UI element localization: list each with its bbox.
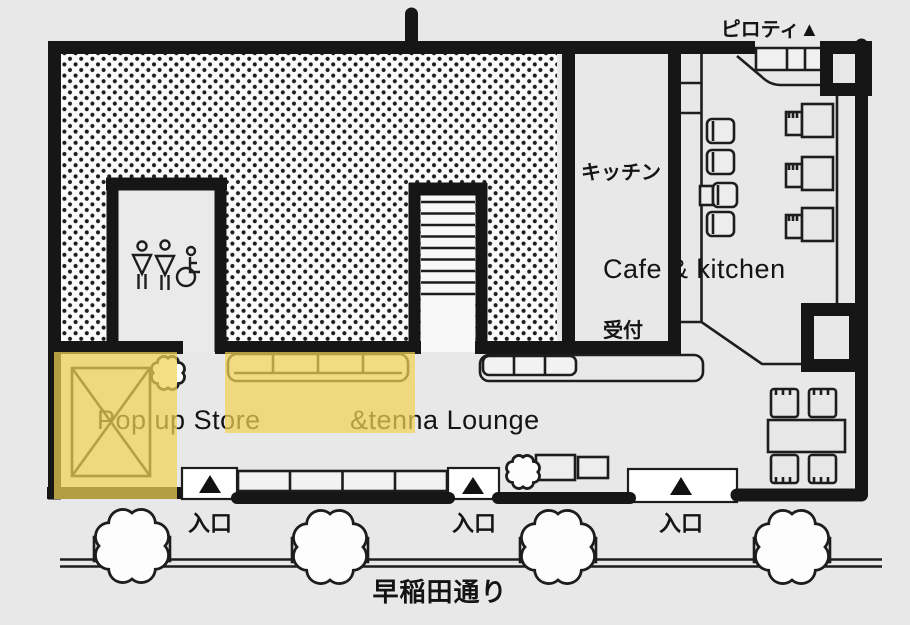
entrance-label-3: 入口 — [659, 511, 703, 536]
window-tables — [786, 104, 833, 241]
street-label: 早稲田通り — [372, 577, 507, 607]
kitchen-label: キッチン — [581, 162, 661, 184]
reception-label: 受付 — [603, 318, 643, 342]
entrance-label-1: 入口 — [188, 511, 232, 536]
piloti-label: ピロティ▲ — [721, 18, 820, 41]
tenna-lounge-highlight — [225, 352, 415, 433]
floor-plan-page: ピロティ▲ キッチン 受付 Cafe & kitchen Pop up Stor… — [0, 0, 910, 625]
staircase — [421, 188, 475, 352]
popup-store-highlight — [54, 352, 177, 499]
floor-plan-svg: ピロティ▲ キッチン 受付 Cafe & kitchen Pop up Stor… — [0, 0, 910, 625]
bench-row — [238, 471, 447, 491]
entrance-label-2: 入口 — [452, 511, 496, 536]
small-counter — [536, 455, 608, 480]
restroom-room — [118, 183, 215, 352]
plant-icon — [507, 456, 540, 489]
reception-counter — [480, 355, 703, 381]
cafe-kitchen-label: Cafe & kitchen — [603, 254, 786, 284]
